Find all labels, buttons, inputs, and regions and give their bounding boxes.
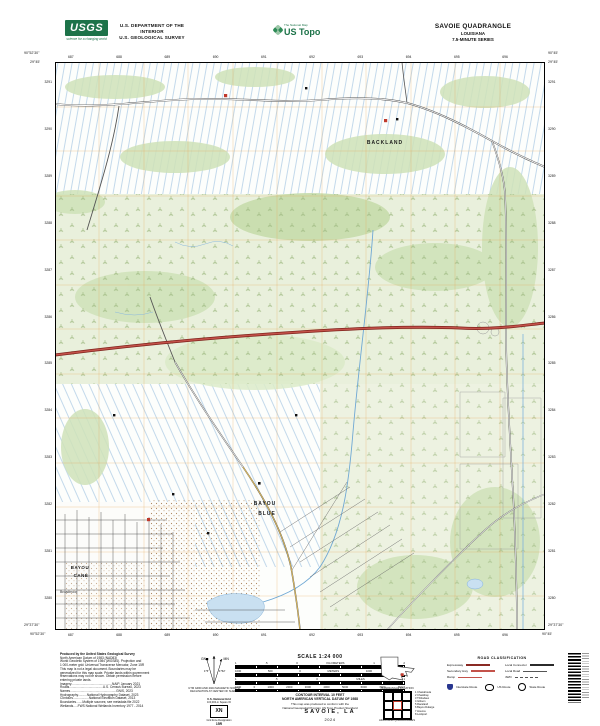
grid-easting-label: 695 [454,55,460,59]
secondary-line-swatch [471,670,495,672]
4wd-line-swatch [515,677,539,678]
scale-mi-number: .5 [275,677,277,681]
adjoining-quad-name: 8 Lockport [415,713,449,716]
label-backland: BACKLAND [367,140,403,146]
grid-northing-label: 3286 [548,315,556,319]
gn-angle: 1°5' [204,669,209,673]
grid-easting-label: 693 [358,633,364,637]
state-locator: QUADRANGLE LOCATION [378,655,416,690]
label-bayou-blue-1: BAYOU [254,501,277,507]
corner-se-lat: 29°37'30" [548,623,563,627]
grid-northing-label: 3283 [44,455,52,459]
scale-m-number: 1000 [366,669,372,673]
grid-easting-label: 695 [454,633,460,637]
corner-ne-lat: 29°45' [548,60,558,64]
ustopo-brand: US Topo [284,28,320,37]
ustopo-flake-icon [272,25,283,36]
grid-northing-label: 3281 [548,549,556,553]
us-topo-map-sheet: { "header": { "usgs_logo": "USGS", "usgs… [0,0,600,725]
scale-ft-number: 4000 [323,685,329,689]
grid-northing-label: 3283 [548,455,556,459]
scale-m-number: 0 [299,669,301,673]
road-class-ramp: Ramp [447,674,499,680]
map-drawing: BACKLAND BAYOU BLUE BAYOU CANE Broadmoor [55,62,545,630]
grid-easting-label: 691 [261,55,267,59]
scale-ft-number: 1000 [268,685,274,689]
scale-m-number: 500 [268,669,273,673]
connector-line-swatch [530,664,554,666]
map-canvas: BACKLAND BAYOU BLUE BAYOU CANE Broadmoor [55,62,545,630]
usng-block: U.S. National Grid 100,000-m Square ID X… [200,697,238,726]
corner-nw-lon: 90°52'30" [24,51,39,55]
production-notes: Produced by the United States Geological… [60,653,196,709]
scale-ft-number: 2000 [286,685,292,689]
corner-sw-lat: 29°37'30" [24,623,39,627]
scale-km-number: 0 [296,661,298,665]
grid-easting-label: 692 [309,633,315,637]
grid-northing-label: 3290 [548,127,556,131]
mn-label: MN [224,657,230,661]
contour-note: CONTOUR INTERVAL 10 FEET NORTH AMERICAN … [235,693,405,702]
grid-easting-label: 694 [406,633,412,637]
road-classification: ROAD CLASSIFICATION Expressway Secondary… [447,656,557,691]
grid-northing-label: 3280 [548,596,556,600]
corner-nw-lat: 29°45' [30,60,40,64]
scale-ft-number: 3000 [305,685,311,689]
state-locator-caption: QUADRANGLE LOCATION [378,687,416,690]
ramp-line-swatch [458,677,482,678]
us-route-key: US Route [485,683,510,691]
grid-easting-label: 690 [213,633,219,637]
grid-northing-label: 3288 [44,221,52,225]
grid-easting-label: 687 [68,55,74,59]
grid-northing-label: 3287 [44,268,52,272]
label-bayou-blue-2: BLUE [258,511,276,517]
corner-ne-lon: 90°45' [548,51,558,55]
usgs-logo-text: USGS [65,20,108,36]
pond [467,579,483,589]
grid-northing-label: 3288 [548,221,556,225]
label-bayou-cane-2: CANE [74,573,89,578]
usng-subtitle: 100,000-m Square ID [200,701,238,704]
grid-easting-label: 696 [502,55,508,59]
grid-labels-right: 3291329032893288328732863285328432833282… [548,80,566,600]
scale-ft-number: 0 [254,685,256,689]
quad-location-dot [401,673,404,676]
department-heading: U.S. DEPARTMENT OF THE INTERIOR U.S. GEO… [112,23,192,41]
scale-km-number: 1 [235,661,237,665]
label-bayou-cane-1: BAYOU [71,565,89,570]
scale-ft-number: 6000 [361,685,367,689]
grid-easting-label: 696 [502,633,508,637]
us-route-shield-icon [485,684,494,691]
dept-line1: U.S. DEPARTMENT OF THE INTERIOR [112,23,192,35]
grid-easting-label: 689 [165,633,171,637]
expressway-line-swatch [466,664,490,667]
grid-northing-label: 3285 [44,361,52,365]
grid-labels-bottom: 687688689690691692693694695696 [68,633,508,637]
interstate-shield-icon [447,684,453,690]
scale-km-number: .5 [265,661,267,665]
scale-mi-number: 1 [235,677,237,681]
margin-barcode [568,653,589,703]
scale-km-number: 1 [373,661,375,665]
mn-angle: 1°52' [219,669,226,673]
barcode-text-column [582,653,589,699]
grid-easting-label: 694 [406,55,412,59]
grid-northing-label: 3284 [548,408,556,412]
road-class-4wd: 4WD [505,674,557,680]
grid-northing-label: 3286 [44,315,52,319]
corner-se-lon: 90°45' [542,632,552,636]
state-route-key: State Route [518,683,545,691]
grid-northing-label: 3284 [44,408,52,412]
grid-labels-top: 687688689690691692693694695696 [68,55,508,59]
ustopo-logo: The National Map US Topo [274,24,320,37]
production-note-line: Wetlands.....FWS National Wetlands Inven… [60,705,196,709]
usgs-logo: USGS science for a changing world [65,20,108,41]
usgs-tagline: science for a changing world [65,37,108,41]
grid-northing-label: 3291 [44,80,52,84]
grid-northing-label: 3291 [548,80,556,84]
grid-northing-label: 3281 [44,549,52,553]
scale-ft-number: 1000 [235,685,241,689]
grid-northing-label: 3282 [548,502,556,506]
grid-northing-label: 3289 [548,174,556,178]
usng-square-id: XN [210,705,228,718]
label-broadmoor: Broadmoor [60,590,78,594]
grid-easting-label: 690 [213,55,219,59]
grid-northing-label: 3282 [44,502,52,506]
grid-northing-label: 3289 [44,174,52,178]
grid-northing-label: 3285 [548,361,556,365]
scale-m-number: 1000 [235,669,241,673]
dept-line2: U.S. GEOLOGICAL SURVEY [112,35,192,41]
grid-northing-label: 3287 [548,268,556,272]
grid-labels-left: 3291329032893288328732863285328432833282… [34,80,52,600]
louisiana-outline [378,655,416,682]
grid-easting-label: 688 [116,633,122,637]
scale-ft-number: 5000 [342,685,348,689]
grid-easting-label: 692 [309,55,315,59]
road-classification-title: ROAD CLASSIFICATION [447,656,557,660]
sheet-title: SAVOIE, LA [250,709,410,715]
sheet-title-block: SAVOIE, LA 2024 [250,709,410,722]
barcode-bars [568,653,581,703]
grid-easting-label: 688 [116,55,122,59]
scale-m-number: METERS [327,669,339,673]
quad-title-block: SAVOIE QUADRANGLE LOUISIANA 7.5-MINUTE S… [408,24,538,44]
quad-series: 7.5-MINUTE SERIES [408,37,538,44]
grid-easting-label: 687 [68,633,74,637]
state-route-shield-icon [518,683,526,691]
grid-easting-label: 693 [358,55,364,59]
grid-northing-label: 3290 [44,127,52,131]
grid-easting-label: 691 [261,633,267,637]
scale-mi-number: MILES [356,677,364,681]
gn-label: GN [201,657,207,661]
sheet-year: 2024 [250,717,410,722]
interstate-route-key: Interstate Route [447,683,477,691]
grid-northing-label: 3280 [44,596,52,600]
usng-gzd: 15R [200,722,238,726]
scale-mi-number: 0 [316,677,318,681]
scale-km-number: KILOMETERS [326,661,344,665]
local-road-line-swatch [523,671,547,672]
corner-sw-lon: 90°52'30" [30,632,45,636]
declination-arrows: GN MN 1°5' 1°52' [196,653,232,687]
adjoining-quads-list: 1 Chacahoula2 Chackbay3 Thibodaux4 Gibso… [415,691,449,716]
grid-easting-label: 689 [165,55,171,59]
